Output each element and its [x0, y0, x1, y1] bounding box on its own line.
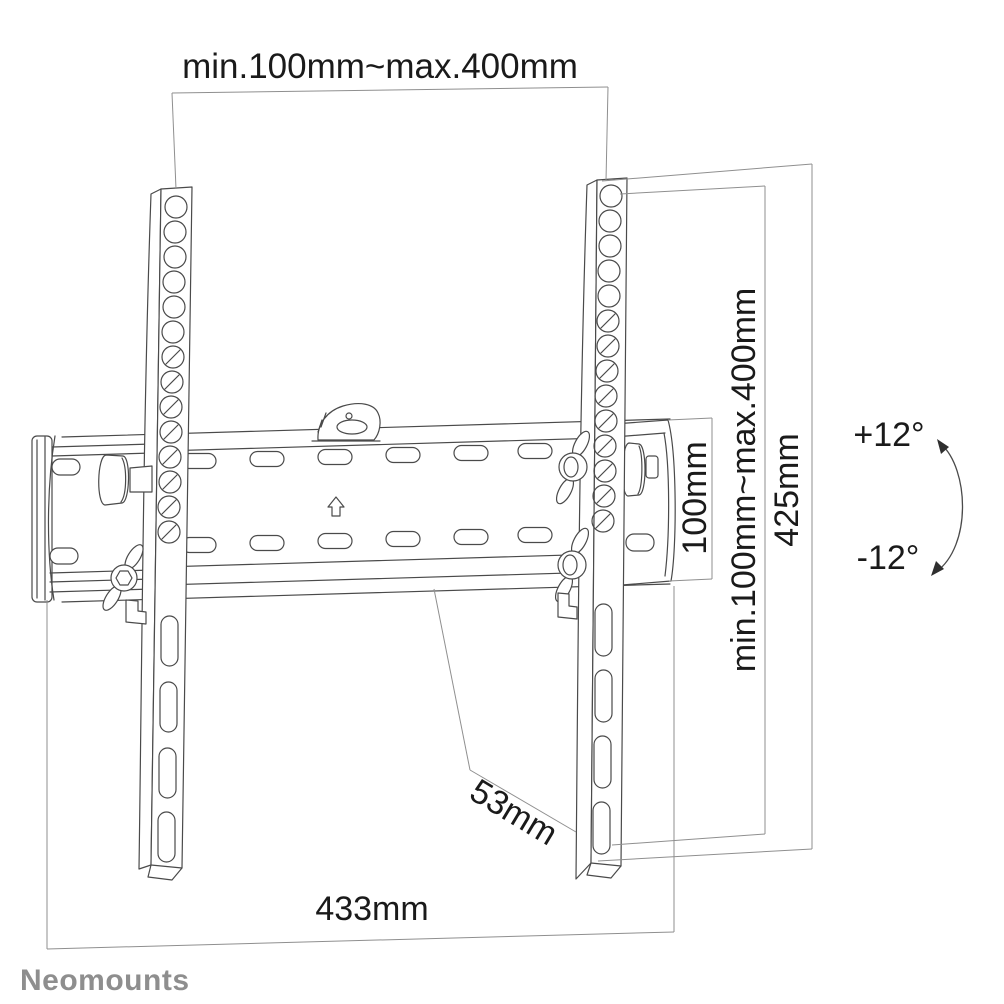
- dim-label-overall-width: 433mm: [315, 890, 428, 928]
- plate-slots-top-row: [182, 444, 552, 469]
- dim-label-vesa-vertical-range: min.100mm~max.400mm: [725, 288, 763, 673]
- mount-drawing-svg: min.100mm~max.400mm 100mm min.100mm~max.…: [0, 0, 1004, 1004]
- tilt-down-label: -12°: [857, 539, 920, 577]
- dim-top-width: min.100mm~max.400mm: [172, 47, 608, 189]
- tilt-annotation: +12° -12°: [853, 416, 962, 577]
- dim-label-top-width: min.100mm~max.400mm: [182, 47, 578, 86]
- left-bracket: [139, 187, 192, 880]
- tilt-up-label: +12°: [853, 416, 924, 454]
- brand-logo: Neomounts: [20, 964, 190, 997]
- dim-label-bracket-height: 425mm: [768, 433, 806, 546]
- tilt-arc-icon: [931, 439, 963, 576]
- plate-slots-bottom-row: [182, 528, 552, 553]
- spirit-level-icon: [312, 404, 380, 441]
- wall-mount-technical-drawing: min.100mm~max.400mm 100mm min.100mm~max.…: [0, 0, 1004, 1004]
- dim-depth: 53mm: [434, 589, 576, 853]
- dim-label-plate-height: 100mm: [676, 441, 714, 554]
- right-safety-hook: [558, 593, 577, 619]
- up-arrow-icon: [328, 497, 344, 516]
- dim-label-depth: 53mm: [463, 772, 564, 853]
